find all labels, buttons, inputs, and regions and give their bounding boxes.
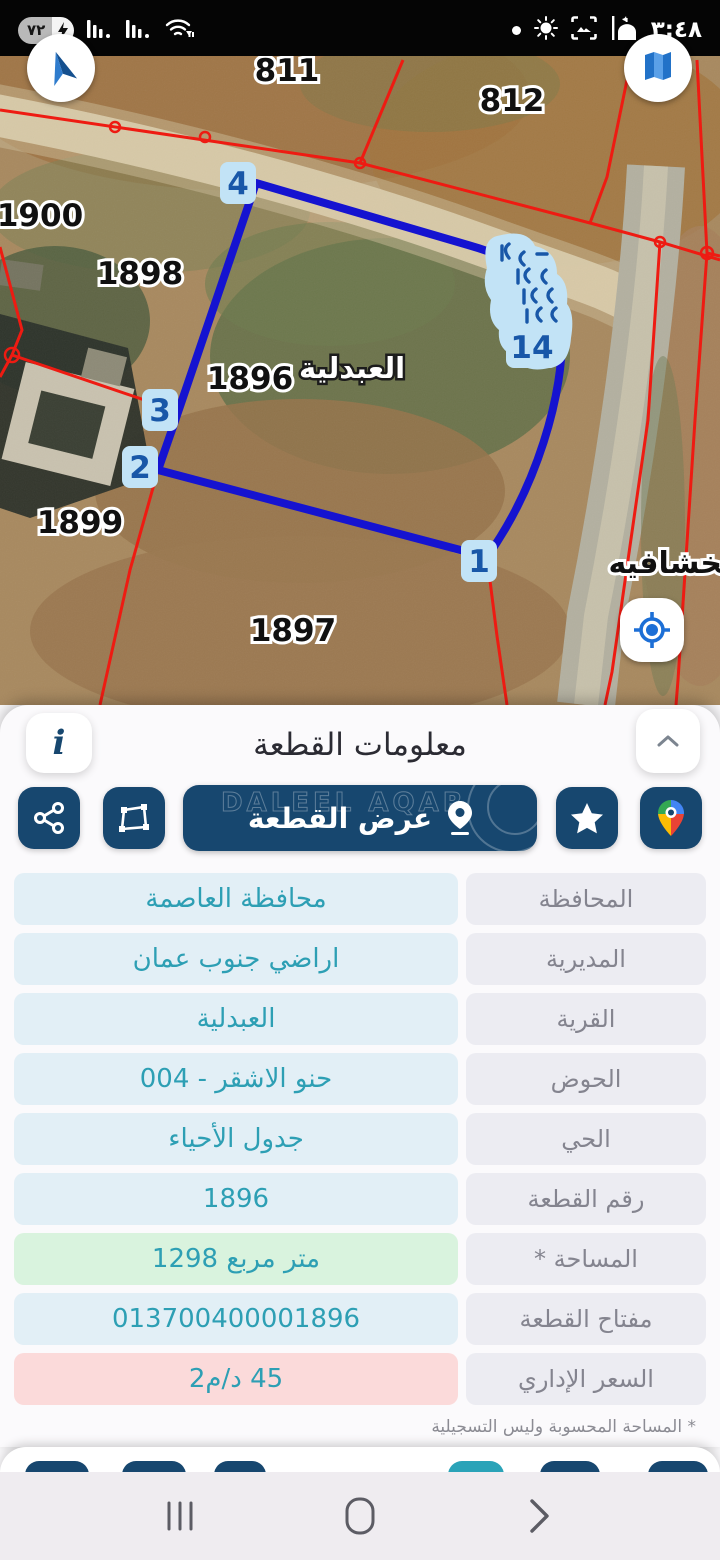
signal-sim2-icon	[126, 18, 152, 42]
district-name-label: الخشافيه	[608, 546, 720, 581]
parcel-label-812: 812	[480, 83, 545, 119]
area-footnote: * المساحة المحسوبة وليس التسجيلية	[0, 1413, 720, 1437]
row-label: المساحة *	[466, 1233, 706, 1285]
vertex-number-3: 3	[149, 393, 171, 429]
sheet-header: i معلومات القطعة	[0, 705, 720, 785]
vertex-number-2: 2	[129, 450, 151, 486]
row-value: 013700400001896	[14, 1293, 458, 1345]
row-label: رقم القطعة	[466, 1173, 706, 1225]
row-label: الحوض	[466, 1053, 706, 1105]
brightness-icon	[534, 16, 558, 44]
wifi-traffic-icon	[165, 17, 195, 43]
parcel-label-1900: 1900	[0, 198, 83, 234]
sheet-title: معلومات القطعة	[0, 727, 720, 763]
google-maps-button[interactable]	[640, 787, 702, 849]
row-value: اراضي جنوب عمان	[14, 933, 458, 985]
screenshot-icon	[571, 16, 597, 44]
vertex-number-14: 14	[510, 330, 553, 366]
polygon-tool-button[interactable]	[103, 787, 165, 849]
row-label: الحي	[466, 1113, 706, 1165]
map-canvas: 432114 81181219001898189618991897 العبدل…	[0, 56, 720, 705]
row-value: العبدلية	[14, 993, 458, 1045]
parcel-label-1898: 1898	[97, 256, 183, 292]
parcel-label-811: 811	[255, 56, 320, 89]
location-pin-icon	[448, 801, 472, 835]
notification-dot-icon	[512, 26, 521, 35]
region-name-label: العبدلية	[299, 351, 405, 385]
view-parcel-label: عرض القطعة	[248, 802, 432, 835]
home-button[interactable]	[330, 1486, 390, 1546]
share-icon	[34, 802, 64, 834]
favorite-button[interactable]	[556, 787, 618, 849]
share-button[interactable]	[18, 787, 80, 849]
recents-button[interactable]	[150, 1486, 210, 1546]
action-row: DALEEL AQAR عرض القطعة	[0, 785, 720, 865]
map-bookmark-button[interactable]	[624, 34, 692, 102]
table-row: المساحة *متر مربع 1298	[14, 1233, 706, 1285]
row-value: متر مربع 1298	[14, 1233, 458, 1285]
collapse-sheet-button[interactable]	[636, 709, 700, 773]
mosque-icon	[610, 16, 638, 44]
parcel-info-table: المحافظةمحافظة العاصمةالمديريةاراضي جنوب…	[0, 865, 720, 1405]
row-label: القرية	[466, 993, 706, 1045]
home-icon	[343, 1496, 377, 1536]
view-parcel-button[interactable]: DALEEL AQAR عرض القطعة	[183, 785, 537, 851]
parcel-info-sheet: i معلومات القطعة DALEEL AQAR عرض القطعة	[0, 705, 720, 1447]
row-value: 45 د/م2	[14, 1353, 458, 1405]
table-row: المحافظةمحافظة العاصمة	[14, 873, 706, 925]
satellite-map[interactable]: 432114 81181219001898189618991897 العبدل…	[0, 56, 720, 705]
chevron-up-icon	[657, 735, 679, 747]
back-button[interactable]	[510, 1486, 570, 1546]
google-maps-pin-icon	[658, 800, 684, 836]
gps-locate-button[interactable]	[620, 598, 684, 662]
polygon-icon	[118, 802, 150, 834]
back-chevron-icon	[529, 1498, 551, 1534]
table-row: القريةالعبدلية	[14, 993, 706, 1045]
row-value: محافظة العاصمة	[14, 873, 458, 925]
table-row: الحيجدول الأحياء	[14, 1113, 706, 1165]
table-row: المديريةاراضي جنوب عمان	[14, 933, 706, 985]
parcel-label-1897: 1897	[250, 613, 336, 649]
row-label: مفتاح القطعة	[466, 1293, 706, 1345]
parcel-label-1899: 1899	[37, 505, 123, 541]
table-row: رقم القطعة1896	[14, 1173, 706, 1225]
row-value: جدول الأحياء	[14, 1113, 458, 1165]
signal-sim1-icon	[87, 18, 113, 42]
row-label: السعر الإداري	[466, 1353, 706, 1405]
row-value: 1896	[14, 1173, 458, 1225]
table-row: مفتاح القطعة013700400001896	[14, 1293, 706, 1345]
android-nav-bar	[0, 1472, 720, 1560]
compass-button[interactable]	[27, 34, 95, 102]
row-label: المحافظة	[466, 873, 706, 925]
row-label: المديرية	[466, 933, 706, 985]
star-icon	[570, 802, 604, 834]
table-row: الحوضحنو الاشقر - 004	[14, 1053, 706, 1105]
recents-icon	[163, 1499, 197, 1533]
phone-screen: ٧٢	[0, 0, 720, 1560]
parcel-label-1896: 1896	[207, 361, 293, 397]
row-value: حنو الاشقر - 004	[14, 1053, 458, 1105]
status-bar: ٧٢	[0, 0, 720, 56]
vertex-number-4: 4	[227, 166, 249, 202]
vertex-number-1: 1	[468, 544, 490, 580]
table-row: السعر الإداري45 د/م2	[14, 1353, 706, 1405]
